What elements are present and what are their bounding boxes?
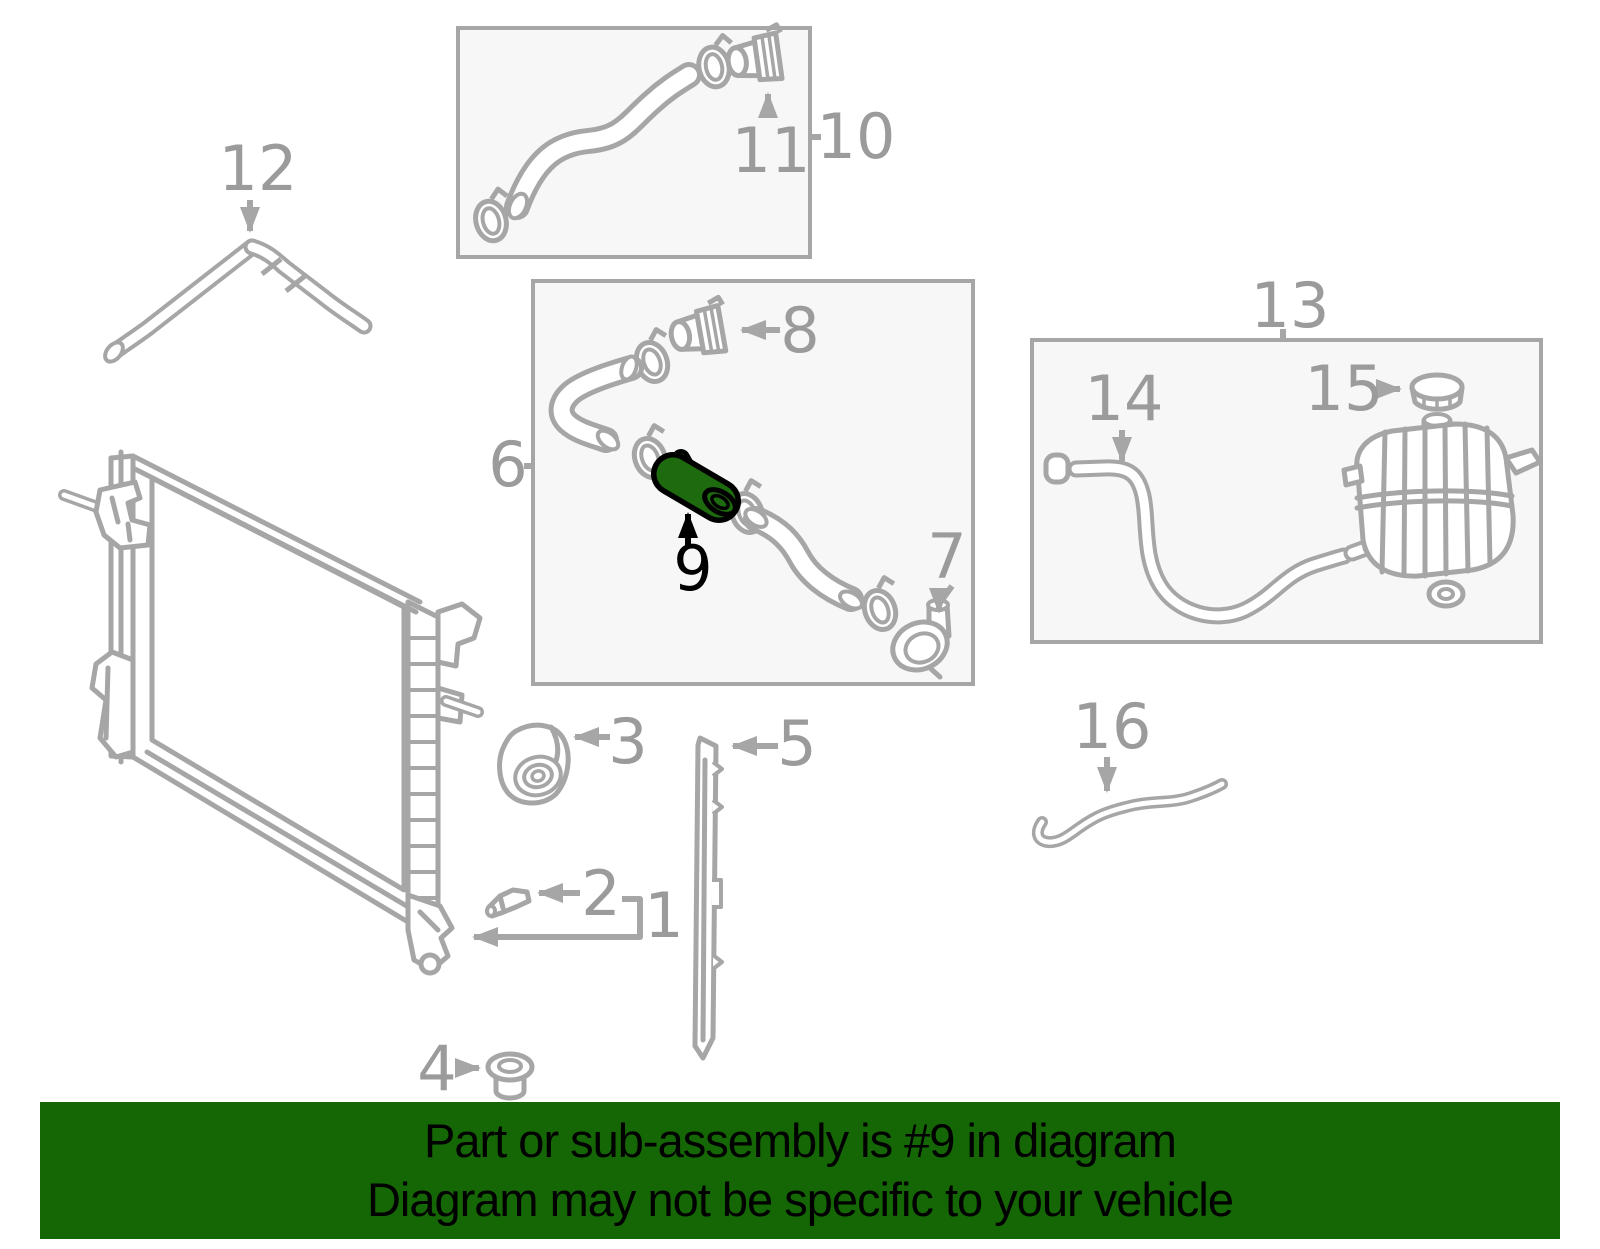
parts-diagram-page: 1 2 3 4 5 6 7 8 9 10 11 12 13 14 15 16 P… — [0, 0, 1600, 1249]
grommet-drawing — [1429, 582, 1463, 606]
banner-line2: Diagram may not be specific to your vehi… — [40, 1171, 1560, 1230]
callout-13: 13 — [1251, 269, 1330, 342]
callout-1: 1 — [644, 879, 683, 952]
callout-3: 3 — [608, 705, 647, 778]
callout-2: 2 — [581, 857, 620, 930]
insulator-3-drawing — [500, 725, 569, 803]
hose-12-drawing — [102, 247, 364, 365]
callout-14: 14 — [1085, 362, 1164, 435]
bracket-5-drawing — [695, 738, 722, 1058]
callout-5: 5 — [777, 707, 816, 780]
grommet-4-drawing — [488, 1054, 532, 1098]
callout-10: 10 — [817, 100, 896, 173]
callout-16: 16 — [1073, 690, 1152, 763]
highlight-banner: Part or sub-assembly is #9 in diagram Di… — [40, 1102, 1560, 1239]
banner-line1: Part or sub-assembly is #9 in diagram — [40, 1112, 1560, 1171]
reservoir-cap-drawing — [1412, 375, 1462, 411]
hose-16-drawing — [1038, 784, 1222, 842]
callout-8: 8 — [780, 294, 819, 367]
callout-15: 15 — [1305, 352, 1384, 425]
callout-4: 4 — [417, 1032, 456, 1105]
callout-12: 12 — [219, 132, 298, 205]
callout-6: 6 — [488, 428, 527, 501]
parts-diagram: 1 2 3 4 5 6 7 8 9 10 11 12 13 14 15 16 — [0, 0, 1600, 1110]
plug-2-drawing — [487, 890, 529, 916]
radiator-drawing — [64, 452, 480, 973]
callout-7: 7 — [927, 520, 966, 593]
callout-11: 11 — [732, 114, 811, 187]
callout-9-highlighted: 9 — [673, 532, 712, 605]
